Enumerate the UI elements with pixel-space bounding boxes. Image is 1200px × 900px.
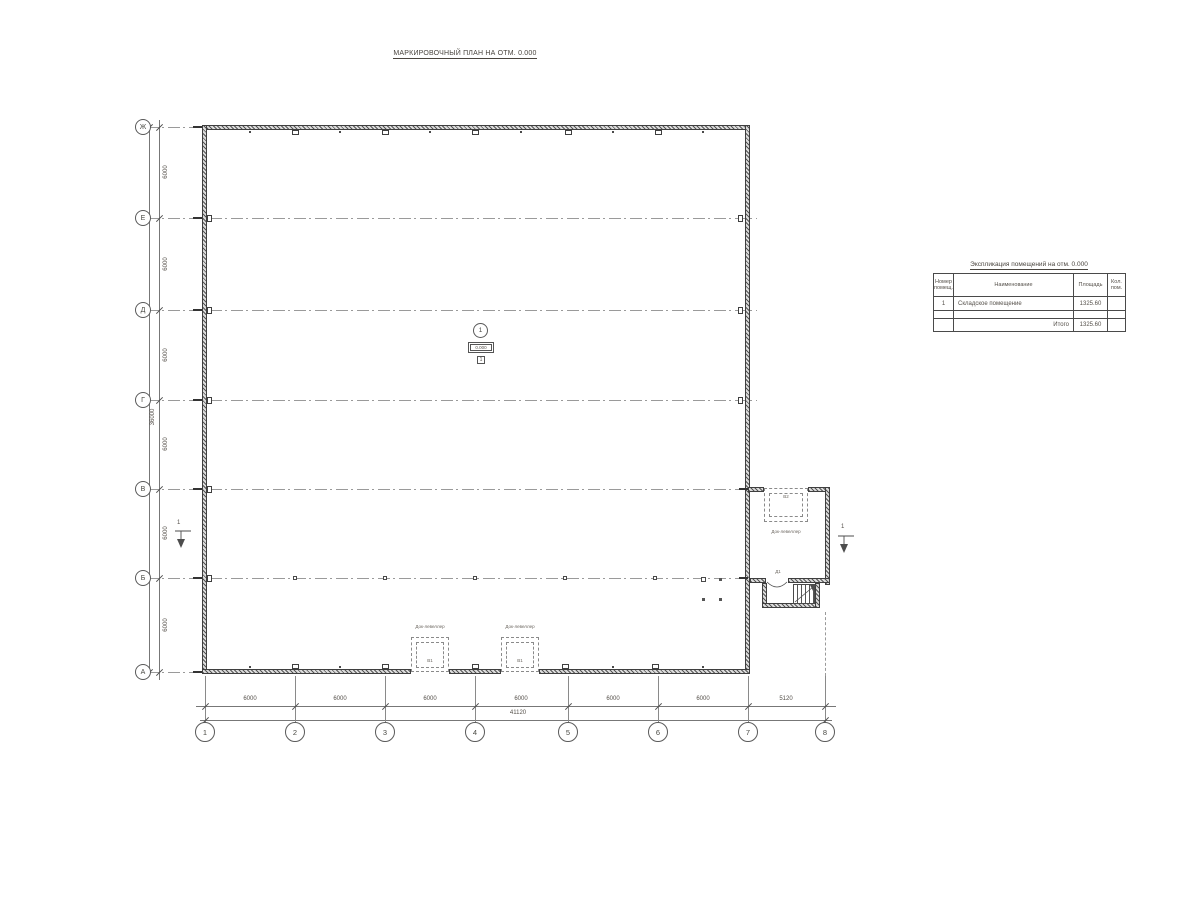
wall-stud — [339, 666, 341, 668]
dock-leveller-label: Док-левеллер — [404, 624, 456, 629]
elevation-box: 0.000 — [468, 342, 494, 353]
wall-bottom — [449, 669, 501, 674]
wall-annex-right — [825, 487, 830, 585]
column — [653, 576, 657, 580]
gate-tag: В2 — [774, 494, 798, 499]
pilaster — [565, 130, 572, 135]
dim-line-bottom-inner — [196, 706, 836, 707]
header-room-number: Номер помещ. — [934, 274, 954, 297]
section-mark-label: 1 — [841, 524, 844, 530]
dim-label: 6000 — [162, 333, 170, 377]
axis-bubble-col: 6 — [648, 722, 668, 742]
axis-mark — [193, 309, 202, 311]
pilaster — [207, 575, 212, 582]
pilaster — [292, 130, 299, 135]
axis-mark — [193, 217, 202, 219]
axis-bubble-row: Б — [135, 570, 151, 586]
column — [719, 598, 722, 601]
dock-leveller-label: Док-левеллер — [756, 529, 816, 534]
door-swing-arc — [767, 582, 787, 587]
dim-label: 6000 — [162, 242, 170, 286]
pilaster — [472, 130, 479, 135]
dim-label: 6000 — [591, 696, 635, 703]
axis-bubble-row: Е — [135, 210, 151, 226]
table-row — [934, 311, 1126, 319]
dim-extension — [205, 676, 206, 722]
wall-vestibule — [788, 578, 830, 583]
dim-label: 6000 — [681, 696, 725, 703]
dim-label: 6000 — [162, 511, 170, 555]
pilaster — [738, 215, 743, 222]
dim-label: 5120 — [764, 696, 808, 703]
wall-stud — [702, 666, 704, 668]
column — [701, 577, 706, 582]
column — [383, 576, 387, 580]
wall-stud — [520, 131, 522, 133]
column — [719, 578, 722, 581]
axis-bubble-col: 8 — [815, 722, 835, 742]
pilaster — [472, 664, 479, 669]
dim-label: 6000 — [408, 696, 452, 703]
grid-line-row — [147, 310, 757, 311]
axis-bubble-row: В — [135, 481, 151, 497]
dim-extension — [658, 676, 659, 722]
wall-bottom — [539, 669, 750, 674]
dim-extension — [748, 676, 749, 722]
cell-empty — [1108, 319, 1126, 332]
dock-leveller-label: Док-левеллер — [494, 624, 546, 629]
dim-extension — [295, 676, 296, 722]
dim-label: 6000 — [318, 696, 362, 703]
staircase — [793, 584, 815, 604]
pilaster — [207, 215, 212, 222]
wall-stud — [612, 666, 614, 668]
axis-mark — [193, 488, 202, 490]
axis-mark — [739, 488, 748, 490]
cell-empty — [934, 311, 954, 319]
axis-bubble-col: 7 — [738, 722, 758, 742]
column — [702, 598, 705, 601]
wall-stud — [339, 131, 341, 133]
axis-bubble-col: 5 — [558, 722, 578, 742]
pilaster — [382, 664, 389, 669]
table-header-row: Номер помещ. Наименование Площадь Кол. п… — [934, 274, 1126, 297]
dim-extension — [568, 676, 569, 722]
wall-stud — [612, 131, 614, 133]
wall-stair — [815, 583, 820, 608]
dock-leveller-outline — [506, 642, 534, 668]
rooms-table: Номер помещ. Наименование Площадь Кол. п… — [933, 273, 1126, 332]
wall-stud — [249, 666, 251, 668]
cell-room-number: 1 — [934, 297, 954, 311]
wall-stud — [702, 131, 704, 133]
pilaster — [652, 664, 659, 669]
grid-line-row — [147, 578, 757, 579]
pilaster — [207, 486, 212, 493]
section-arrow-right — [840, 544, 848, 553]
table-row: 1 Складское помещение 1325.60 — [934, 297, 1126, 311]
dim-extension — [475, 676, 476, 722]
cell-empty — [954, 311, 1074, 319]
pilaster — [738, 397, 743, 404]
pilaster — [207, 397, 212, 404]
section-mark-left — [175, 531, 191, 540]
axis-bubble-col: 2 — [285, 722, 305, 742]
grid-line-col-8 — [825, 612, 826, 676]
wall-stud — [429, 131, 431, 133]
cell-empty — [1108, 311, 1126, 319]
cell-room-count — [1108, 297, 1126, 311]
dim-label: 6000 — [162, 422, 170, 466]
axis-mark — [739, 577, 748, 579]
dim-label: 6000 — [162, 150, 170, 194]
header-room-count: Кол. пом. — [1108, 274, 1126, 297]
section-mark-label: 1 — [177, 520, 180, 526]
axis-bubble-col: 1 — [195, 722, 215, 742]
wall-bottom — [202, 669, 411, 674]
axis-bubble-row: Ж — [135, 119, 151, 135]
axis-mark — [193, 671, 202, 673]
cell-room-name: Складское помещение — [954, 297, 1074, 311]
column — [563, 576, 567, 580]
cell-empty — [1074, 311, 1108, 319]
cell-total-area: 1325.60 — [1074, 319, 1108, 332]
pilaster — [207, 307, 212, 314]
section-mark-right — [838, 536, 854, 545]
pilaster — [292, 664, 299, 669]
axis-mark — [193, 399, 202, 401]
grid-line-row — [147, 400, 757, 401]
grid-line-row — [147, 218, 757, 219]
room-number-bubble: 1 — [473, 323, 488, 338]
dim-label-total: 41120 — [496, 710, 540, 717]
cell-room-area: 1325.60 — [1074, 297, 1108, 311]
axis-mark — [193, 577, 202, 579]
header-room-area: Площадь — [1074, 274, 1108, 297]
dim-label: 6000 — [499, 696, 543, 703]
room-marker-square: 1 — [477, 356, 485, 364]
axis-bubble-col: 4 — [465, 722, 485, 742]
dim-label: 6000 — [228, 696, 272, 703]
table-title-text: Экспликация помещений на отм. 0.000 — [970, 261, 1088, 270]
wall-stud — [249, 131, 251, 133]
dim-label: 6000 — [162, 603, 170, 647]
axis-bubble-row: Г — [135, 392, 151, 408]
drawing-sheet: МАРКИРОВОЧНЫЙ ПЛАН НА ОТМ. 0.000 6000 60… — [0, 0, 1200, 900]
column — [293, 576, 297, 580]
axis-bubble-col: 3 — [375, 722, 395, 742]
grid-line-row — [147, 489, 757, 490]
pilaster — [382, 130, 389, 135]
header-room-name: Наименование — [954, 274, 1074, 297]
pilaster — [562, 664, 569, 669]
pilaster — [655, 130, 662, 135]
dock-leveller-outline — [416, 642, 444, 668]
explication-block: Экспликация помещений на отм. 0.000 Номе… — [933, 261, 1125, 332]
gate-tag: В1 — [511, 658, 529, 663]
wall-right — [745, 125, 750, 674]
door-tag: Д1 — [767, 569, 789, 574]
axis-mark — [193, 126, 202, 128]
elevation-value: 0.000 — [470, 344, 492, 351]
gate-tag: В1 — [421, 658, 439, 663]
section-arrow-left — [177, 539, 185, 548]
dim-extension — [385, 676, 386, 722]
column — [473, 576, 477, 580]
table-total-row: Итого 1325.60 — [934, 319, 1126, 332]
page-title-text: МАРКИРОВОЧНЫЙ ПЛАН НА ОТМ. 0.000 — [393, 50, 536, 59]
page-title: МАРКИРОВОЧНЫЙ ПЛАН НА ОТМ. 0.000 — [360, 50, 570, 57]
axis-bubble-row: А — [135, 664, 151, 680]
table-title: Экспликация помещений на отм. 0.000 — [933, 261, 1125, 268]
dim-extension — [825, 676, 826, 722]
pilaster — [738, 307, 743, 314]
axis-bubble-row: Д — [135, 302, 151, 318]
wall-annex-top — [748, 487, 764, 492]
cell-total-label: Итого — [954, 319, 1074, 332]
overlay-strokes — [0, 0, 1200, 900]
cell-empty — [934, 319, 954, 332]
